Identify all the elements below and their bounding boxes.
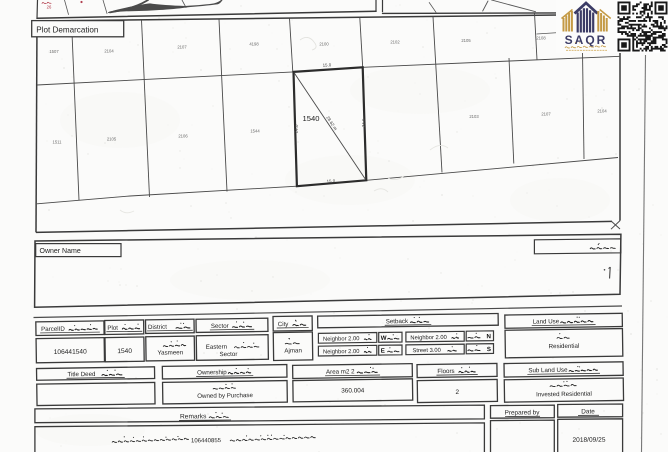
svg-text:1511: 1511 (52, 140, 62, 145)
svg-text:Owner Name: Owner Name (40, 248, 81, 255)
svg-text:Plot: Plot (107, 325, 118, 332)
svg-text:City: City (278, 321, 290, 328)
svg-text:N: N (486, 333, 491, 340)
svg-text:4198: 4198 (249, 42, 259, 47)
svg-text:Neighbor 2.00: Neighbor 2.00 (323, 349, 360, 356)
svg-text:2107: 2107 (541, 112, 551, 117)
svg-text:SAQR: SAQR (565, 33, 608, 47)
svg-text:Street 3.00: Street 3.00 (412, 348, 440, 354)
svg-text:2104: 2104 (597, 109, 607, 114)
svg-text:District: District (148, 324, 167, 331)
svg-text:Area m2 2: Area m2 2 (326, 368, 355, 375)
svg-text:Sector: Sector (211, 323, 229, 330)
svg-text:106441540: 106441540 (54, 349, 87, 356)
svg-text:E: E (381, 348, 385, 355)
svg-text:Owned by Purchase: Owned by Purchase (197, 392, 253, 400)
svg-text:Ajman: Ajman (284, 347, 302, 354)
svg-text:2: 2 (455, 389, 459, 396)
svg-text:2100: 2100 (319, 42, 329, 47)
svg-text:Sector: Sector (219, 351, 237, 358)
svg-text:Eastern: Eastern (206, 344, 228, 351)
svg-text:1540: 1540 (303, 114, 320, 123)
svg-text:2104: 2104 (104, 49, 114, 54)
svg-text:2103: 2103 (469, 114, 479, 119)
svg-text:S: S (487, 346, 491, 353)
svg-text:15.0: 15.0 (326, 178, 335, 184)
svg-text:Land Use: Land Use (533, 318, 560, 325)
svg-text:W: W (381, 335, 387, 342)
svg-text:1507: 1507 (49, 49, 59, 54)
svg-text:Ownership: Ownership (197, 369, 227, 376)
svg-text:1540: 1540 (117, 348, 132, 355)
svg-text:2018/09/25: 2018/09/25 (572, 437, 605, 444)
svg-text:1544: 1544 (250, 129, 260, 134)
svg-text:Yasmeen: Yasmeen (157, 349, 183, 356)
svg-text:Date: Date (581, 408, 595, 415)
svg-text:Residential: Residential (549, 343, 580, 350)
svg-text:24.0: 24.0 (361, 118, 366, 127)
svg-text:360.004: 360.004 (341, 387, 365, 394)
svg-text:Neighbor 2.00: Neighbor 2.00 (410, 335, 447, 342)
svg-text:2102: 2102 (390, 40, 400, 45)
svg-text:Invested Residential: Invested Residential (536, 391, 592, 399)
svg-text:Floors: Floors (437, 368, 454, 375)
svg-text:2106: 2106 (178, 134, 188, 139)
svg-text:2107: 2107 (177, 45, 187, 50)
svg-text:Setback: Setback (386, 318, 409, 325)
svg-text:2105: 2105 (107, 137, 117, 142)
svg-text:15.0: 15.0 (322, 62, 331, 68)
svg-text:Neighbor 2.00: Neighbor 2.00 (323, 336, 360, 343)
svg-text:106440855: 106440855 (191, 438, 222, 444)
svg-text:2105: 2105 (461, 38, 471, 43)
svg-text:Remarks: Remarks (180, 413, 207, 420)
svg-text:Prepared by: Prepared by (505, 409, 541, 416)
svg-text:Title Deed: Title Deed (67, 371, 96, 378)
svg-text:Sub Land Use: Sub Land Use (528, 367, 568, 375)
svg-text:2108: 2108 (536, 36, 546, 41)
svg-text:Plot Demarcation: Plot Demarcation (36, 26, 98, 35)
svg-text:26: 26 (47, 5, 52, 10)
svg-text:24.0: 24.0 (294, 124, 299, 133)
svg-text:ParcelID: ParcelID (41, 326, 65, 333)
